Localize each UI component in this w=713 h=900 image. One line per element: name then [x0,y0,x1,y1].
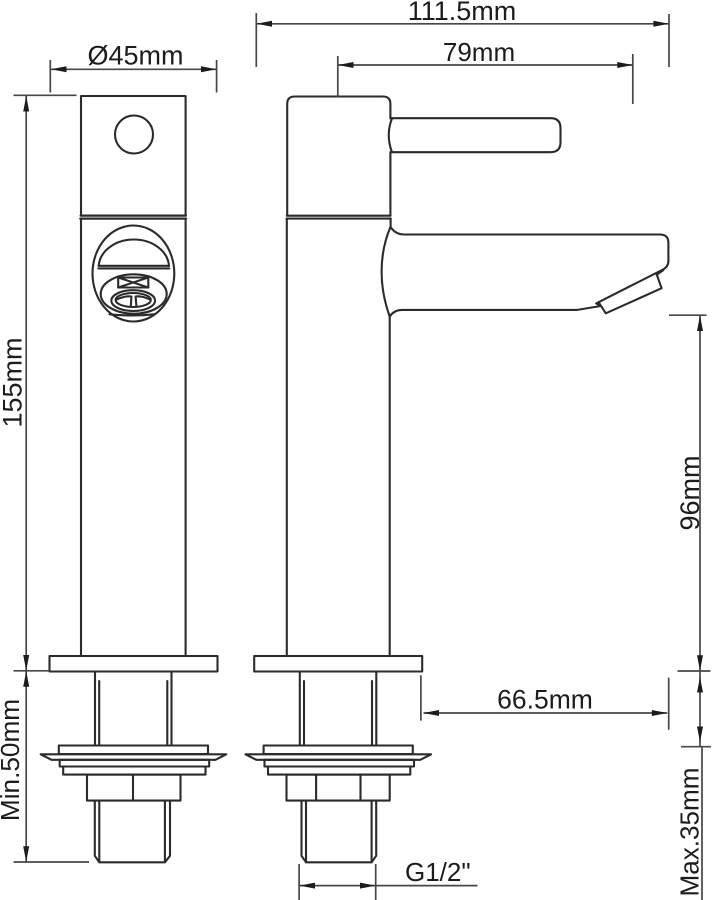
svg-text:Max.35mm: Max.35mm [675,767,705,896]
svg-text:79mm: 79mm [443,37,515,67]
svg-text:96mm: 96mm [675,455,705,530]
svg-text:G1/2": G1/2" [405,857,471,887]
svg-text:111.5mm: 111.5mm [408,0,517,26]
svg-text:Min.50mm: Min.50mm [0,699,25,821]
svg-text:Ø45mm: Ø45mm [87,41,183,71]
svg-text:155mm: 155mm [0,337,28,427]
svg-text:66.5mm: 66.5mm [497,685,593,715]
